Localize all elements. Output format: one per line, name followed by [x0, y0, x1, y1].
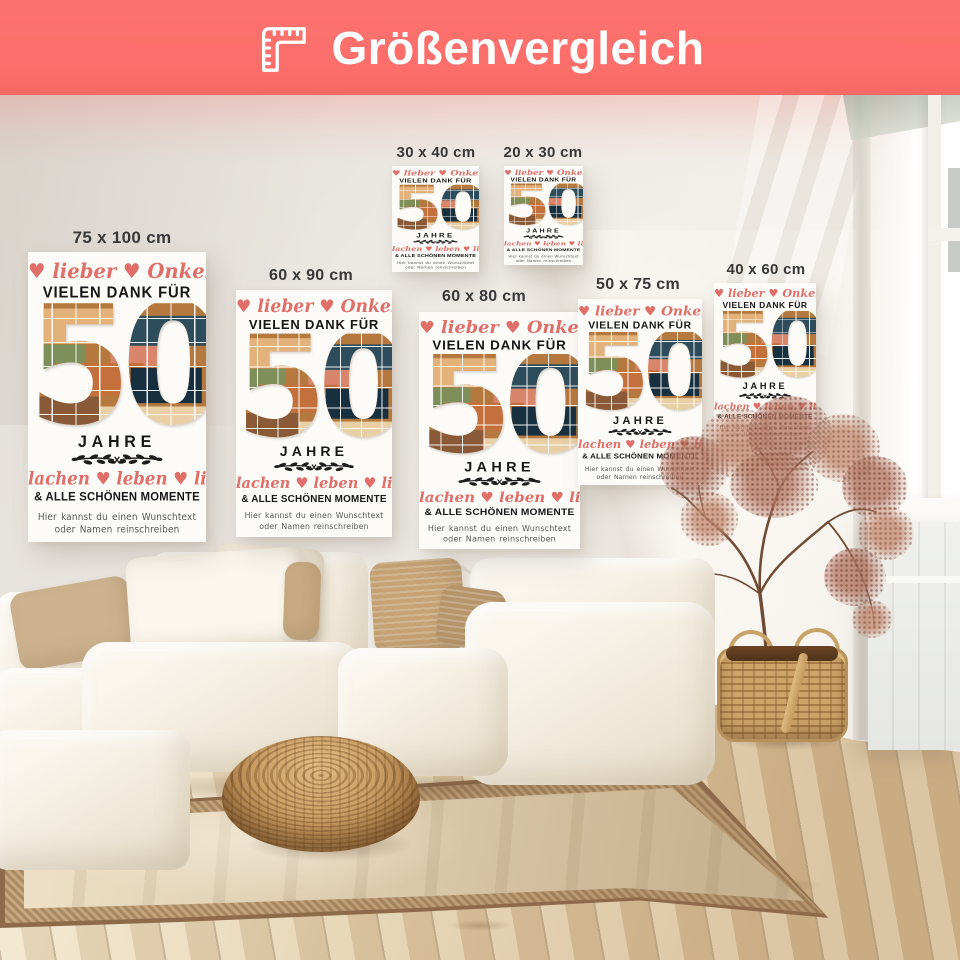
script-laugh-live-love: lachen ♥ leben ♥ lieben: [504, 240, 583, 247]
photo-collage-number-50: 50: [578, 332, 702, 419]
photo-collage-number-50: 50: [419, 354, 580, 465]
poster-size-label: 40 x 60 cm: [727, 261, 806, 278]
poster-size-label: 75 x 100 cm: [73, 228, 172, 248]
poster-size-label: 30 x 40 cm: [397, 144, 476, 161]
poster-50-jahre-collage: ♥ lieber ♥ Onkel ♥ VIELEN DANK FÜR 50 JA…: [504, 166, 583, 265]
script-laugh-live-love: lachen ♥ leben ♥ lieben: [392, 245, 479, 253]
photo-collage-number-50: 50: [504, 183, 583, 229]
size-comparison-screenshot: 75 x 100 cm ♥ lieber ♥ Onkel ♥ VIELEN DA…: [0, 0, 960, 960]
moments-line: & ALLE SCHÖNEN MOMENTE: [504, 248, 583, 253]
dried-flower-cluster: [824, 548, 886, 606]
script-laugh-live-love: lachen ♥ leben ♥ lieben: [28, 468, 206, 490]
poster-50-jahre-collage: ♥ lieber ♥ Onkel ♥ VIELEN DANK FÜR 50 JA…: [236, 290, 392, 537]
poster-50-jahre-collage: ♥ lieber ♥ Onkel ♥ VIELEN DANK FÜR 50 JA…: [392, 166, 479, 272]
poster-20x30cm: 20 x 30 cm ♥ lieber ♥ Onkel ♥ VIELEN DAN…: [504, 166, 583, 265]
ruler-icon: [255, 21, 309, 75]
wish-text: Hier kannst du einen Wunschtext oder Nam…: [504, 254, 583, 263]
photo-collage-number-50: 50: [714, 311, 816, 385]
poster-30x40cm: 30 x 40 cm ♥ lieber ♥ Onkel ♥ VIELEN DAN…: [392, 166, 479, 272]
dried-flower-cluster: [852, 600, 892, 638]
poster-75x100cm: 75 x 100 cm ♥ lieber ♥ Onkel ♥ VIELEN DA…: [28, 252, 206, 542]
photo-collage-number-50: 50: [392, 185, 479, 235]
moments-line: & ALLE SCHÖNEN MOMENTE: [236, 494, 392, 506]
moments-line: & ALLE SCHÖNEN MOMENTE: [392, 253, 479, 258]
poster-60x90cm: 60 x 90 cm ♥ lieber ♥ Onkel ♥ VIELEN DAN…: [236, 290, 392, 537]
page-title: Größenvergleich: [331, 21, 704, 75]
moments-line: & ALLE SCHÖNEN MOMENTE: [419, 507, 580, 518]
poster-size-label: 20 x 30 cm: [504, 144, 583, 161]
poster-size-label: 50 x 75 cm: [596, 276, 680, 294]
wish-text: Hier kannst du einen Wunschtext oder Nam…: [28, 511, 206, 536]
poster-50-jahre-collage: ♥ lieber ♥ Onkel ♥ VIELEN DANK FÜR 50 JA…: [419, 312, 580, 549]
wish-text: Hier kannst du einen Wunschtext oder Nam…: [419, 523, 580, 543]
photo-collage-number-50: 50: [236, 333, 392, 449]
photo-collage-number-50: 50: [28, 303, 206, 439]
poster-size-label: 60 x 80 cm: [442, 288, 526, 306]
poster-60x80cm: 60 x 80 cm ♥ lieber ♥ Onkel ♥ VIELEN DAN…: [419, 312, 580, 549]
script-laugh-live-love: lachen ♥ leben ♥ lieben: [419, 489, 580, 507]
dried-flower-cluster: [730, 452, 818, 518]
moments-line: & ALLE SCHÖNEN MOMENTE: [28, 491, 206, 505]
poster-50-jahre-collage: ♥ lieber ♥ Onkel ♥ VIELEN DANK FÜR 50 JA…: [28, 252, 206, 542]
script-laugh-live-love: lachen ♥ leben ♥ lieben: [236, 474, 392, 492]
wish-text: Hier kannst du einen Wunschtext oder Nam…: [392, 261, 479, 270]
dried-flower-cluster: [680, 492, 738, 546]
poster-size-label: 60 x 90 cm: [269, 267, 353, 285]
header-banner: Größenvergleich: [0, 0, 960, 95]
wish-text: Hier kannst du einen Wunschtext oder Nam…: [236, 510, 392, 531]
